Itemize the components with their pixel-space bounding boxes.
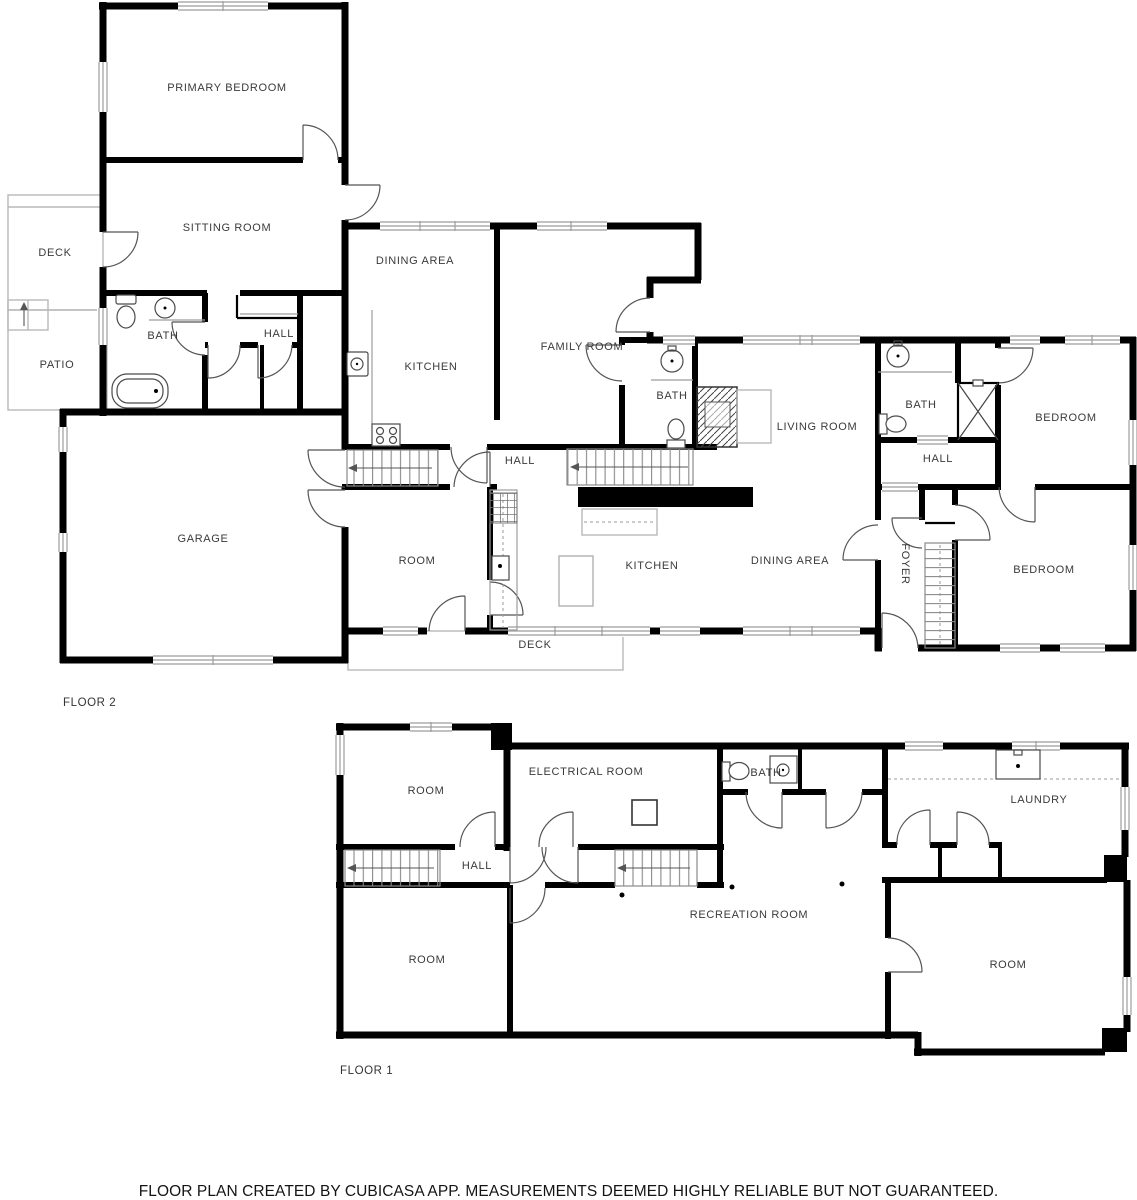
room-label-laundry: LAUNDRY: [1011, 794, 1068, 806]
toilet-icon: [116, 295, 136, 328]
fireplace-icon: [697, 387, 771, 447]
window: [743, 625, 860, 637]
window: [1119, 787, 1131, 830]
sink-icon: [878, 341, 952, 372]
room-label-kitchen: KITCHEN: [405, 361, 458, 373]
window: [1010, 334, 1040, 346]
floor1-stairs: [345, 850, 697, 886]
room-label-dining-area: DINING AREA: [376, 255, 454, 267]
room-label-bedroom-2: BEDROOM: [1013, 564, 1074, 576]
window: [1121, 977, 1133, 1015]
electrical-panel-icon: [632, 800, 657, 825]
room-label-dining-area-2: DINING AREA: [751, 555, 829, 567]
room-label-family-room: FAMILY ROOM: [541, 341, 624, 353]
washer-icon: [996, 750, 1040, 779]
window: [383, 625, 418, 637]
window: [660, 625, 700, 637]
sink-icon: [651, 346, 693, 380]
window: [508, 625, 650, 637]
floor2-outdoor-areas: [8, 195, 623, 670]
window: [57, 533, 69, 552]
room-label-bath-f1: BATH: [750, 767, 781, 779]
floor-plan-page: PRIMARY BEDROOM SITTING ROOM DECK BATH H…: [0, 0, 1137, 1200]
toilet-icon: [722, 762, 749, 781]
room-label-patio: PATIO: [40, 359, 75, 371]
window: [153, 654, 273, 666]
sink-icon: [492, 556, 509, 580]
room-label-garage: GARAGE: [177, 533, 228, 545]
window: [97, 62, 109, 112]
shower-icon: [958, 380, 998, 440]
toilet-icon: [667, 419, 685, 448]
room-label-hall-2: HALL: [923, 453, 953, 465]
support-post: [620, 893, 625, 898]
window: [537, 220, 607, 232]
room-label-bedroom: BEDROOM: [1035, 412, 1096, 424]
room-label-hall-3: HALL: [505, 455, 535, 467]
window: [905, 740, 943, 752]
room-label-bath: BATH: [147, 330, 178, 342]
floor2-walls: [60, 2, 1136, 663]
window: [1127, 420, 1137, 465]
room-label-foyer: FOYER: [899, 543, 911, 584]
room-label-kitchen-2: KITCHEN: [626, 560, 679, 572]
room-label-room: ROOM: [399, 555, 436, 567]
disclaimer-text: FLOOR PLAN CREATED BY CUBICASA APP. MEAS…: [0, 1183, 1137, 1200]
floor2-stairs: [347, 449, 955, 648]
room-label-room-f1-3: ROOM: [990, 959, 1027, 971]
window: [57, 427, 69, 452]
floor2-windows: [57, 0, 1137, 666]
room-label-hall-f1: HALL: [462, 860, 492, 872]
bathtub-icon: [112, 374, 168, 408]
stove-icon: [372, 424, 400, 446]
window: [1000, 642, 1040, 654]
floor2-doors: [103, 125, 1035, 648]
floor2-label: FLOOR 2: [63, 697, 116, 709]
window: [97, 308, 109, 345]
room-label-electrical-room: ELECTRICAL ROOM: [529, 766, 644, 778]
room-label-living-room: LIVING ROOM: [777, 421, 858, 433]
room-label-recreation-room: RECREATION ROOM: [690, 909, 808, 921]
room-label-deck: DECK: [38, 247, 71, 259]
grill-icon: [490, 493, 517, 523]
kitchen-island: [559, 556, 593, 606]
window: [1065, 334, 1120, 346]
window: [1060, 642, 1105, 654]
room-label-room-f1: ROOM: [408, 785, 445, 797]
room-label-bath-2: BATH: [656, 390, 687, 402]
window: [663, 334, 695, 346]
room-label-sitting-room: SITTING ROOM: [183, 222, 272, 234]
window: [917, 434, 948, 446]
room-label-room-f1-2: ROOM: [409, 954, 446, 966]
toilet-icon: [879, 414, 906, 434]
window: [334, 735, 346, 775]
floor1-label: FLOOR 1: [340, 1065, 393, 1077]
room-label-bath-3: BATH: [905, 399, 936, 411]
window: [882, 481, 918, 493]
support-post: [840, 882, 845, 887]
window: [410, 721, 452, 733]
window: [178, 0, 268, 12]
window: [380, 220, 490, 232]
room-label-hall: HALL: [264, 328, 294, 340]
room-label-primary-bedroom: PRIMARY BEDROOM: [167, 82, 287, 94]
room-label-deck-2: DECK: [518, 639, 551, 651]
floor-plan-drawing: [0, 0, 1137, 1200]
sink-icon: [347, 352, 368, 376]
window: [743, 334, 860, 346]
support-post: [730, 885, 735, 890]
sink-icon: [149, 298, 205, 320]
window: [1127, 545, 1137, 590]
